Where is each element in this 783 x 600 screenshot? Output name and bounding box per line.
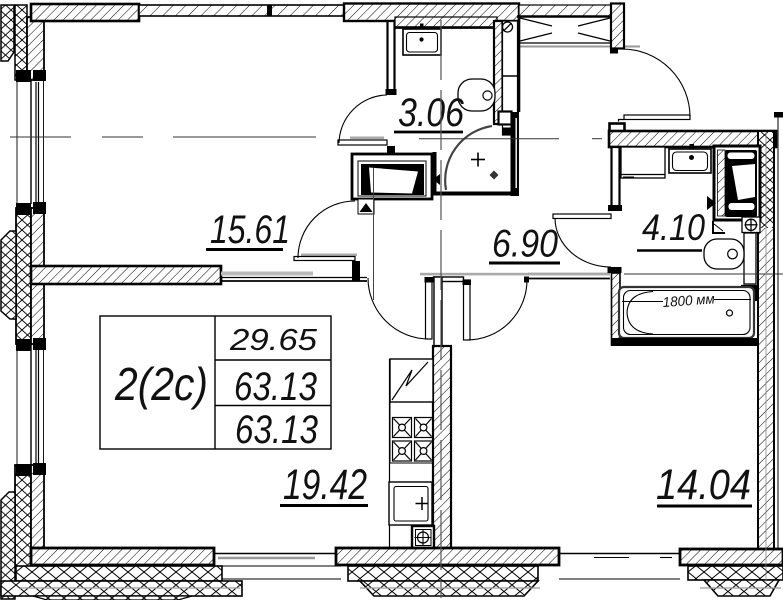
svg-text:4.10: 4.10 <box>642 207 705 248</box>
svg-text:6.90: 6.90 <box>492 223 558 266</box>
svg-text:29.65: 29.65 <box>229 322 318 357</box>
svg-text:15.61: 15.61 <box>210 208 290 252</box>
svg-text:63.13: 63.13 <box>235 408 318 452</box>
svg-text:14.04: 14.04 <box>656 461 751 509</box>
svg-text:19.42: 19.42 <box>283 461 367 509</box>
svg-text:3.06: 3.06 <box>398 91 465 135</box>
svg-text:2(2с): 2(2с) <box>114 358 208 410</box>
svg-text:63.13: 63.13 <box>234 365 317 409</box>
